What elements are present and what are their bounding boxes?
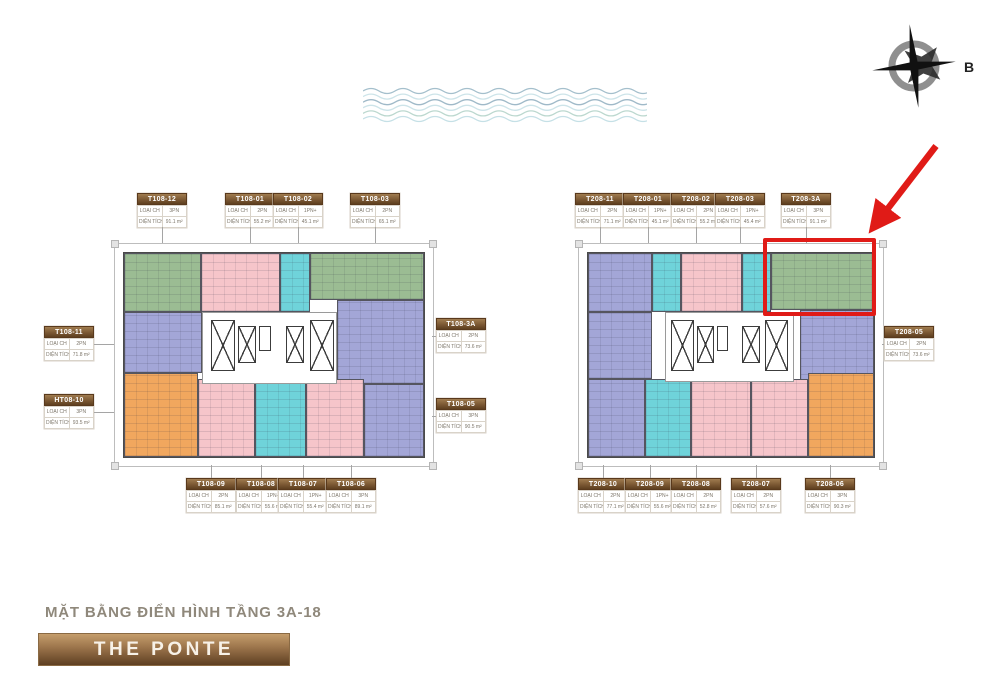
water-waves-icon [363,86,647,124]
stair-lift-box [286,326,304,363]
brand-name: THE PONTE [94,639,234,661]
field-area-label: DIỆN TÍCH [806,502,831,513]
unit-info-table: LOẠI CH2PNDIỆN TÍCH52.8 m² [671,490,721,513]
unit-info-table: LOẠI CH2PNDIỆN TÍCH65.1 m² [350,205,400,228]
stair-lift-box [671,320,694,371]
unit-code: T108-12 [137,193,187,205]
unit-type-value: 3PN [69,407,94,418]
field-type-label: LOẠI CH [885,339,910,350]
unit-label-T108-06: T108-06LOẠI CH3PNDIỆN TÍCH89.1 m² [326,478,376,513]
column-marker [575,462,583,470]
unit-type-value: 2PN [756,491,781,502]
label-connector-line [211,465,212,478]
unit-block-orange [124,373,198,457]
unit-block-purple [588,253,652,312]
unit-code: T108-07 [278,478,328,490]
field-type-label: LOẠI CH [279,491,304,502]
unit-label-T108-09: T108-09LOẠI CH2PNDIỆN TÍCH85.1 m² [186,478,236,513]
field-area-label: DIỆN TÍCH [437,422,462,433]
field-area-label: DIỆN TÍCH [279,502,304,513]
label-connector-line [94,344,114,345]
field-area-label: DIỆN TÍCH [782,217,807,228]
unit-block-pink [201,253,281,312]
unit-block-purple [124,312,202,373]
field-area-label: DIỆN TÍCH [45,418,70,429]
brand-bar: THE PONTE [38,633,290,666]
unit-type-value: 2PN [603,491,628,502]
unit-block-pink [691,379,751,457]
unit-block-cyan [645,379,691,457]
field-type-label: LOẠI CH [672,491,697,502]
unit-code: T208-05 [884,326,934,338]
label-connector-line [375,227,376,243]
unit-type-value: 2PN [250,206,275,217]
unit-area-value: 90.3 m² [830,502,855,513]
field-area-label: DIỆN TÍCH [437,342,462,353]
unit-label-T108-07: T108-07LOẠI CH1PN+DIỆN TÍCH55.4 m² [278,478,328,513]
unit-label-T208-05: T208-05LOẠI CH2PNDIỆN TÍCH73.6 m² [884,326,934,361]
unit-info-table: LOẠI CH1PN+DIỆN TÍCH45.1 m² [623,205,673,228]
shaft-box [717,326,728,350]
label-connector-line [696,465,697,478]
unit-label-T208-01: T208-01LOẠI CH1PN+DIỆN TÍCH45.1 m² [623,193,673,228]
column-marker [111,240,119,248]
field-type-label: LOẠI CH [45,339,70,350]
unit-type-value: 2PN [211,491,236,502]
field-area-label: DIỆN TÍCH [576,217,601,228]
column-marker [879,462,887,470]
field-type-label: LOẠI CH [806,491,831,502]
unit-info-table: LOẠI CH2PNDIỆN TÍCH73.6 m² [436,330,486,353]
label-connector-line [740,227,741,243]
unit-area-value: 77.1 m² [603,502,628,513]
label-connector-line [696,227,697,243]
unit-label-T208-07: T208-07LOẠI CH2PNDIỆN TÍCH57.6 m² [731,478,781,513]
label-connector-line [261,465,262,478]
unit-area-value: 91.1 m² [806,217,831,228]
unit-info-table: LOẠI CH2PNDIỆN TÍCH55.2 m² [671,205,721,228]
unit-code: T108-05 [436,398,486,410]
shaft-box [259,326,271,350]
unit-code: T108-09 [186,478,236,490]
unit-label-T208-03: T208-03LOẠI CH1PN+DIỆN TÍCH45.4 m² [715,193,765,228]
unit-code: T208-01 [623,193,673,205]
label-connector-line [830,465,831,478]
unit-type-value: 1PN+ [298,206,323,217]
unit-info-table: LOẠI CH1PN+DIỆN TÍCH55.4 m² [278,490,328,513]
unit-code: T208-02 [671,193,721,205]
unit-label-T208-10: T208-10LOẠI CH2PNDIỆN TÍCH77.1 m² [578,478,628,513]
label-connector-line [250,227,251,243]
unit-area-value: 55.2 m² [250,217,275,228]
unit-code: T208-09 [625,478,675,490]
unit-area-value: 52.8 m² [696,502,721,513]
field-area-label: DIỆN TÍCH [672,217,697,228]
unit-block-cyan [652,253,681,312]
unit-info-table: LOẠI CH3PNDIỆN TÍCH91.1 m² [781,205,831,228]
field-type-label: LOẠI CH [437,331,462,342]
unit-type-value: 1PN+ [740,206,765,217]
column-marker [575,240,583,248]
label-connector-line [432,336,436,337]
unit-label-T208-11: T208-11LOẠI CH2PNDIỆN TÍCH71.1 m² [575,193,625,228]
unit-code: T208-06 [805,478,855,490]
unit-area-value: 45.1 m² [648,217,673,228]
unit-block-pink [306,379,365,457]
unit-code: T108-01 [225,193,275,205]
field-area-label: DIỆN TÍCH [45,350,70,361]
unit-label-HT08-10: HT08-10LOẠI CH3PNDIỆN TÍCH93.5 m² [44,394,94,429]
field-type-label: LOẠI CH [351,206,376,217]
unit-type-value: 3PN [461,411,486,422]
unit-block-pink [751,379,808,457]
unit-label-T108-11: T108-11LOẠI CH2PNDIỆN TÍCH71.8 m² [44,326,94,361]
unit-area-value: 57.6 m² [756,502,781,513]
label-connector-line [882,344,884,345]
plan-title: MẶT BẰNG ĐIỂN HÌNH TẦNG 3A-18 [45,604,322,621]
unit-code: T208-3A [781,193,831,205]
unit-info-table: LOẠI CH2PNDIỆN TÍCH55.2 m² [225,205,275,228]
unit-info-table: LOẠI CH3PNDIỆN TÍCH93.5 m² [44,406,94,429]
unit-block-purple [588,379,645,457]
field-area-label: DIỆN TÍCH [187,502,212,513]
unit-block-pink [198,379,255,457]
field-area-label: DIỆN TÍCH [274,217,299,228]
unit-info-table: LOẠI CH2PNDIỆN TÍCH71.8 m² [44,338,94,361]
unit-block-green [124,253,201,312]
field-type-label: LOẠI CH [437,411,462,422]
unit-area-value: 71.8 m² [69,350,94,361]
unit-type-value: 2PN [600,206,625,217]
field-area-label: DIỆN TÍCH [237,502,262,513]
unit-code: HT08-10 [44,394,94,406]
label-connector-line [162,227,163,243]
label-connector-line [648,227,649,243]
unit-area-value: 65.1 m² [375,217,400,228]
field-type-label: LOẠI CH [237,491,262,502]
unit-label-T208-09: T208-09LOẠI CH1PN+DIỆN TÍCH55.6 m² [625,478,675,513]
unit-area-value: 89.1 m² [351,502,376,513]
field-area-label: DIỆN TÍCH [716,217,741,228]
field-area-label: DIỆN TÍCH [226,217,251,228]
field-type-label: LOẠI CH [716,206,741,217]
unit-type-value: 3PN [162,206,187,217]
stair-lift-box [765,320,788,371]
unit-block-pink [681,253,742,312]
unit-type-value: 3PN [830,491,855,502]
stair-lift-box [697,326,714,363]
unit-code: T208-08 [671,478,721,490]
unit-area-value: 55.4 m² [303,502,328,513]
unit-type-value: 1PN+ [648,206,673,217]
unit-type-value: 2PN [696,491,721,502]
unit-info-table: LOẠI CH3PNDIỆN TÍCH90.5 m² [436,410,486,433]
unit-type-value: 2PN [909,339,934,350]
unit-code: T208-07 [731,478,781,490]
field-type-label: LOẠI CH [672,206,697,217]
unit-area-value: 71.1 m² [600,217,625,228]
unit-label-T108-01: T108-01LOẠI CH2PNDIỆN TÍCH55.2 m² [225,193,275,228]
field-area-label: DIỆN TÍCH [672,502,697,513]
unit-code: T208-11 [575,193,625,205]
unit-type-value: 2PN [69,339,94,350]
unit-type-value: 2PN [375,206,400,217]
unit-label-T208-02: T208-02LOẠI CH2PNDIỆN TÍCH55.2 m² [671,193,721,228]
field-area-label: DIỆN TÍCH [626,502,651,513]
unit-code: T108-02 [273,193,323,205]
unit-code: T108-11 [44,326,94,338]
label-connector-line [351,465,352,478]
unit-block-purple [364,384,424,457]
unit-code: T108-3A [436,318,486,330]
field-type-label: LOẠI CH [579,491,604,502]
unit-info-table: LOẠI CH1PN+DIỆN TÍCH45.1 m² [273,205,323,228]
unit-type-value: 3PN [806,206,831,217]
stair-lift-box [211,320,235,371]
column-marker [879,240,887,248]
label-connector-line [303,465,304,478]
unit-area-value: 91.1 m² [162,217,187,228]
stair-lift-box [238,326,256,363]
field-area-label: DIỆN TÍCH [351,217,376,228]
highlight-box [763,238,876,316]
field-type-label: LOẠI CH [327,491,352,502]
unit-area-value: 93.5 m² [69,418,94,429]
unit-info-table: LOẠI CH2PNDIỆN TÍCH73.6 m² [884,338,934,361]
unit-area-value: 73.6 m² [909,350,934,361]
unit-info-table: LOẠI CH1PN+DIỆN TÍCH45.4 m² [715,205,765,228]
unit-area-value: 45.1 m² [298,217,323,228]
unit-label-T208-3A: T208-3ALOẠI CH3PNDIỆN TÍCH91.1 m² [781,193,831,228]
label-connector-line [94,412,114,413]
unit-block-cyan [280,253,310,312]
unit-area-value: 73.6 m² [461,342,486,353]
unit-label-T108-12: T108-12LOẠI CH3PNDIỆN TÍCH91.1 m² [137,193,187,228]
label-connector-line [603,465,604,478]
field-type-label: LOẠI CH [576,206,601,217]
unit-area-value: 90.5 m² [461,422,486,433]
field-area-label: DIỆN TÍCH [624,217,649,228]
unit-label-T208-06: T208-06LOẠI CH3PNDIỆN TÍCH90.3 m² [805,478,855,513]
plan-area-T108 [114,243,434,467]
unit-code: T208-03 [715,193,765,205]
unit-info-table: LOẠI CH2PNDIỆN TÍCH85.1 m² [186,490,236,513]
unit-area-value: 45.4 m² [740,217,765,228]
unit-block-cyan [255,379,306,457]
column-marker [111,462,119,470]
label-connector-line [650,465,651,478]
field-type-label: LOẠI CH [226,206,251,217]
unit-info-table: LOẠI CH3PNDIỆN TÍCH91.1 m² [137,205,187,228]
field-area-label: DIỆN TÍCH [732,502,757,513]
unit-label-T108-02: T108-02LOẠI CH1PN+DIỆN TÍCH45.1 m² [273,193,323,228]
unit-info-table: LOẠI CH2PNDIỆN TÍCH77.1 m² [578,490,628,513]
field-type-label: LOẠI CH [626,491,651,502]
column-marker [429,462,437,470]
unit-code: T108-03 [350,193,400,205]
unit-area-value: 85.1 m² [211,502,236,513]
unit-block-purple [337,300,424,384]
field-type-label: LOẠI CH [45,407,70,418]
stair-lift-box [310,320,334,371]
unit-type-value: 2PN [461,331,486,342]
field-type-label: LOẠI CH [782,206,807,217]
label-connector-line [298,227,299,243]
floorplan-sheet: { "page": {"background": "#ffffff"}, "co… [0,0,984,697]
compass-rose-icon: B [872,16,976,116]
label-connector-line [756,465,757,478]
label-connector-line [600,227,601,243]
unit-type-value: 1PN+ [303,491,328,502]
unit-code: T208-10 [578,478,628,490]
field-area-label: DIỆN TÍCH [885,350,910,361]
field-area-label: DIỆN TÍCH [138,217,163,228]
unit-info-table: LOẠI CH1PN+DIỆN TÍCH55.6 m² [625,490,675,513]
field-type-label: LOẠI CH [187,491,212,502]
unit-label-T108-05: T108-05LOẠI CH3PNDIỆN TÍCH90.5 m² [436,398,486,433]
compass-north-label: B [964,59,974,75]
unit-block-orange [808,373,874,457]
field-area-label: DIỆN TÍCH [579,502,604,513]
field-type-label: LOẠI CH [274,206,299,217]
unit-block-purple [588,312,652,379]
unit-info-table: LOẠI CH3PNDIỆN TÍCH90.3 m² [805,490,855,513]
unit-label-T208-08: T208-08LOẠI CH2PNDIỆN TÍCH52.8 m² [671,478,721,513]
label-connector-line [432,416,436,417]
unit-block-green [310,253,424,300]
field-type-label: LOẠI CH [732,491,757,502]
unit-info-table: LOẠI CH3PNDIỆN TÍCH89.1 m² [326,490,376,513]
column-marker [429,240,437,248]
unit-info-table: LOẠI CH2PNDIỆN TÍCH71.1 m² [575,205,625,228]
unit-info-table: LOẠI CH2PNDIỆN TÍCH57.6 m² [731,490,781,513]
unit-label-T108-3A: T108-3ALOẠI CH2PNDIỆN TÍCH73.6 m² [436,318,486,353]
unit-type-value: 3PN [351,491,376,502]
field-type-label: LOẠI CH [624,206,649,217]
stair-lift-box [742,326,759,363]
plan-units-T108 [123,252,425,458]
field-area-label: DIỆN TÍCH [327,502,352,513]
field-type-label: LOẠI CH [138,206,163,217]
unit-code: T108-06 [326,478,376,490]
unit-label-T108-03: T108-03LOẠI CH2PNDIỆN TÍCH65.1 m² [350,193,400,228]
